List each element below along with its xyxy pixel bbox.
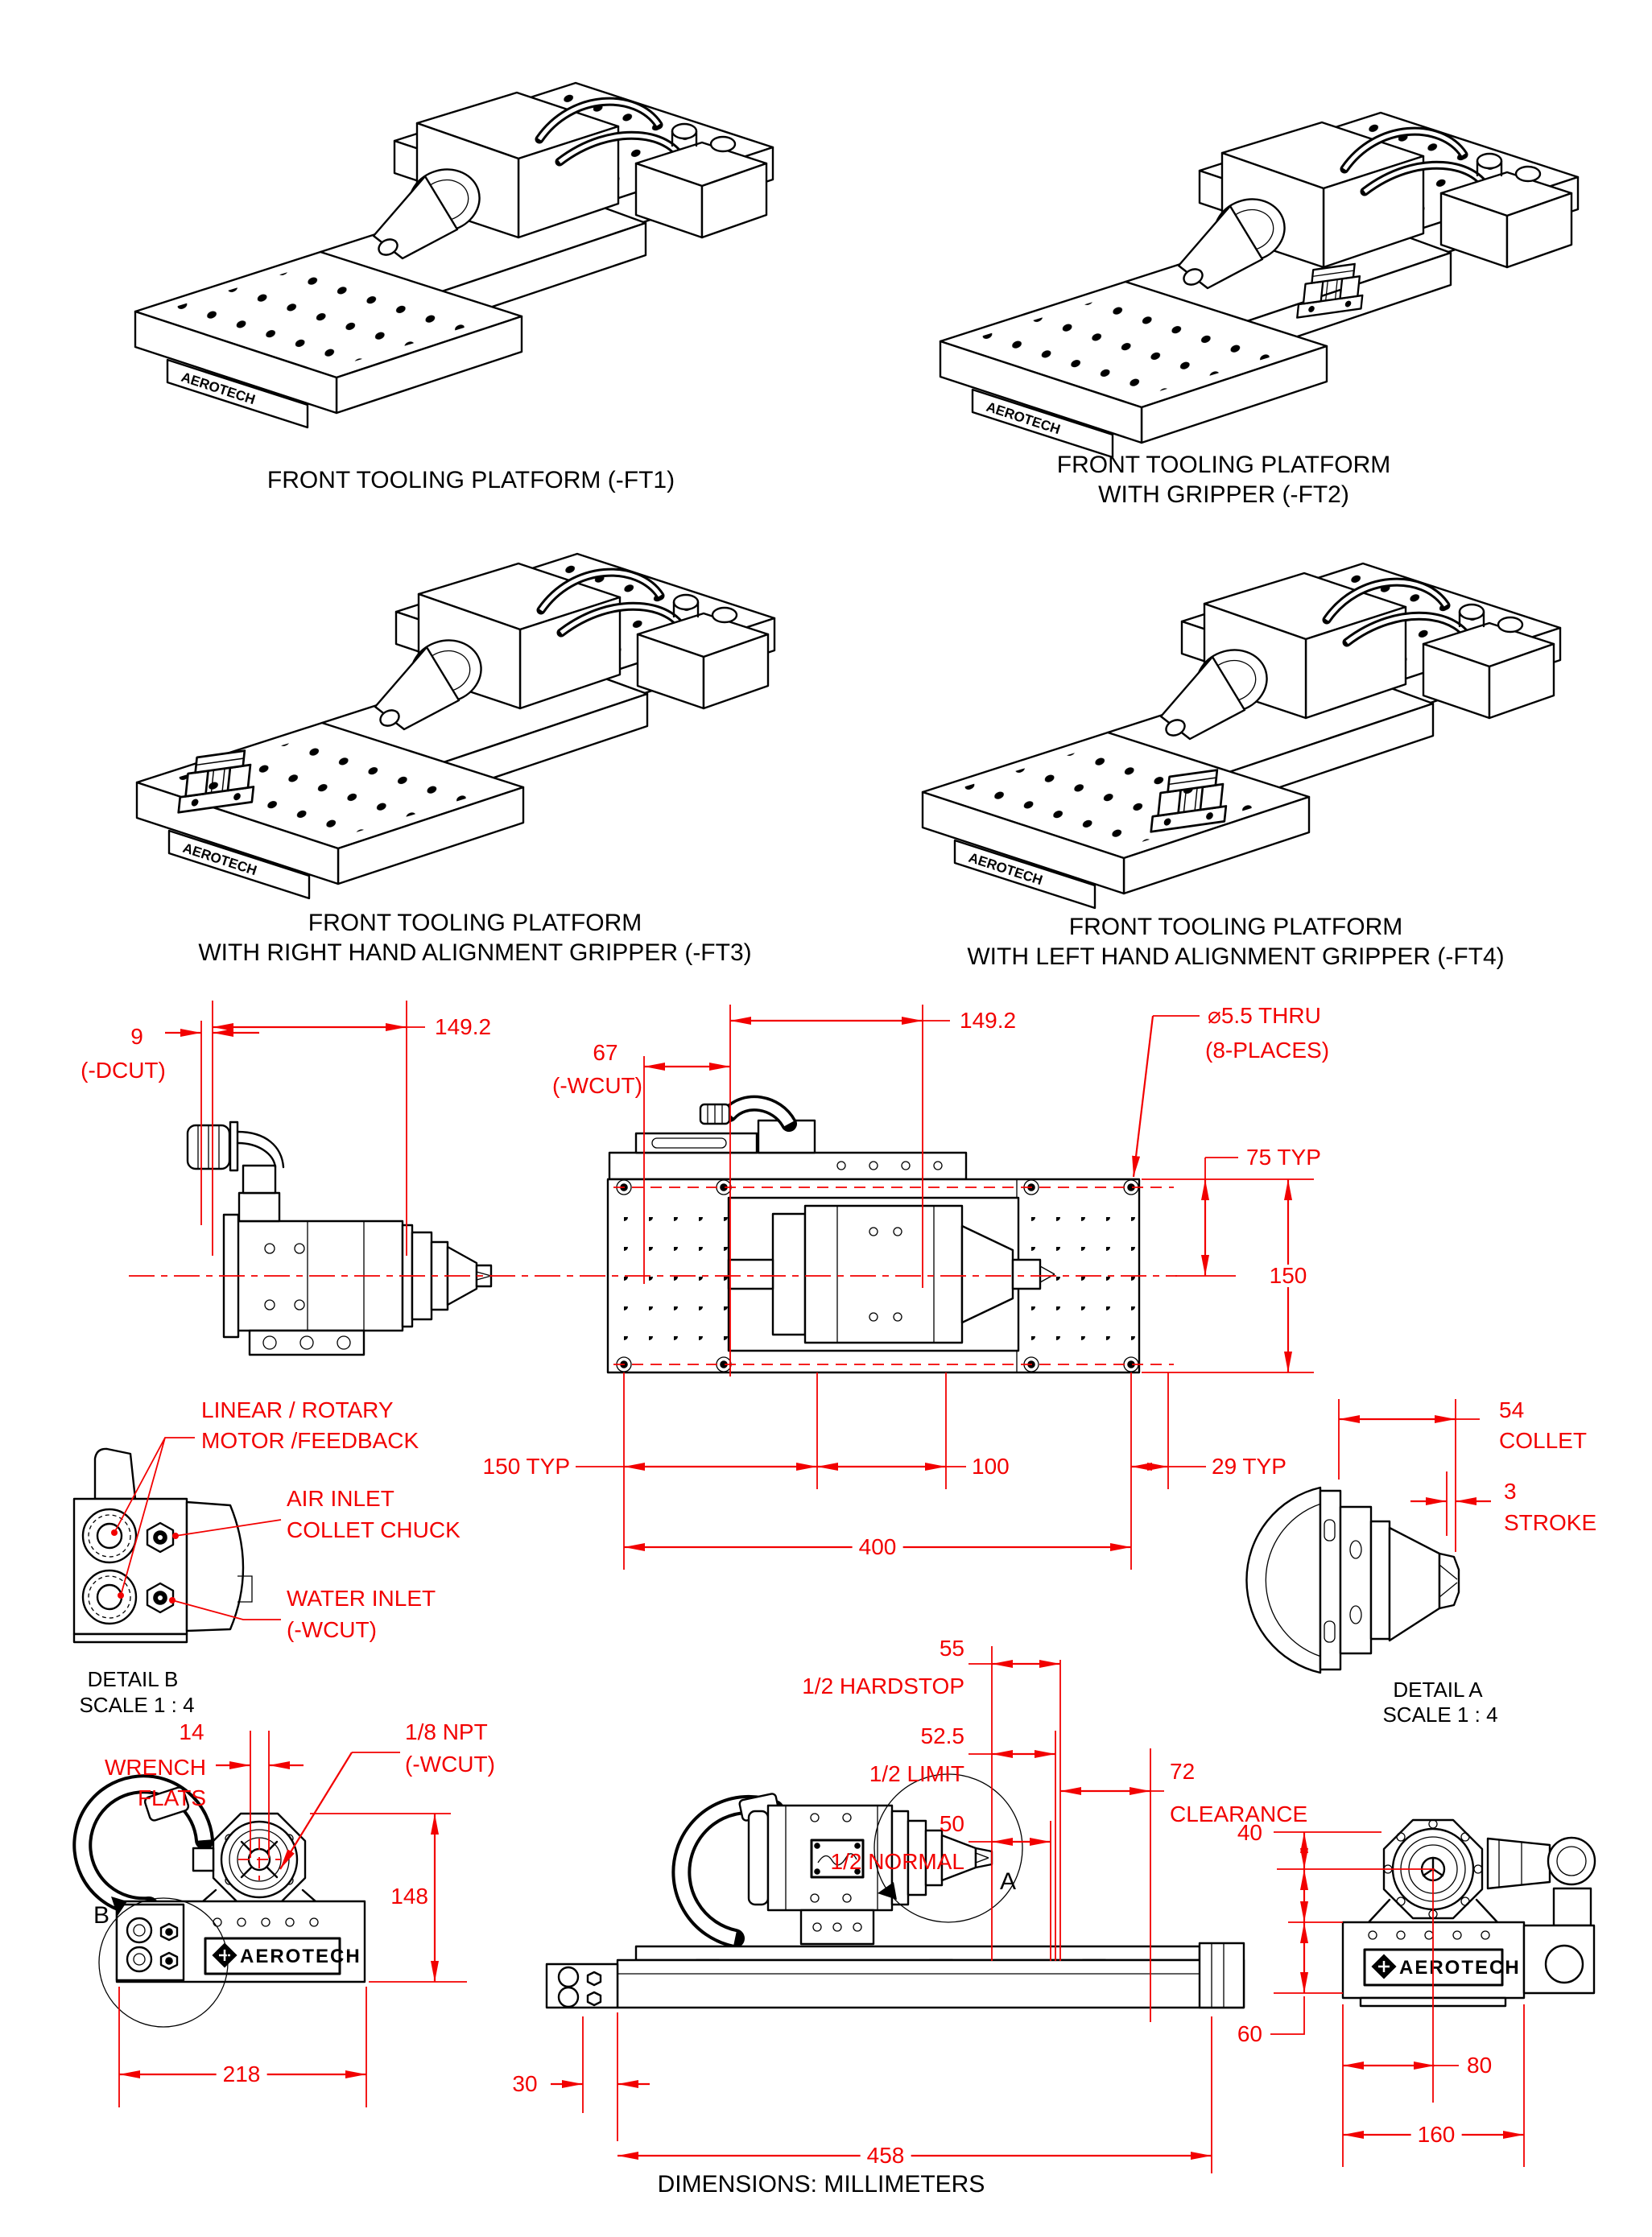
hole-callout-2: (8-PLACES) — [1205, 1039, 1329, 1062]
logo-text-end: AEROTECH — [1399, 1957, 1521, 1979]
caption-ft4-line1: FRONT TOOLING PLATFORM — [1069, 915, 1403, 939]
dim-150: 150 — [1263, 1265, 1314, 1287]
label-air-1: AIR INLET — [287, 1488, 394, 1510]
dim-218: 218 — [217, 2063, 267, 2086]
dim-60: 60 — [1237, 2023, 1262, 2045]
label-50: 1/2 NORMAL — [831, 1851, 965, 1873]
detail-a-view — [1246, 1399, 1491, 1673]
dim-148: 148 — [390, 1885, 428, 1908]
dim-67-note: (-WCUT) — [552, 1075, 642, 1097]
label-wrench: WRENCH — [105, 1756, 206, 1779]
label-55: 1/2 HARDSTOP — [802, 1675, 964, 1698]
caption-ft2-line2: WITH GRIPPER (-FT2) — [1098, 483, 1349, 507]
aerotech-logo-front: AEROTECH — [205, 1938, 361, 1974]
dim-29-typ: 29 TYP — [1212, 1455, 1286, 1478]
plan-view — [608, 1104, 1139, 1372]
caption-ft4-line2: WITH LEFT HAND ALIGNMENT GRIPPER (-FT4) — [967, 945, 1504, 969]
label-motor-1: LINEAR / ROTARY — [201, 1399, 394, 1422]
detail-a-title: DETAIL A — [1393, 1679, 1482, 1700]
side-view — [188, 1122, 491, 1355]
detail-b-title: DETAIL B — [88, 1669, 179, 1690]
dim-80: 80 — [1467, 2054, 1492, 2077]
iso-view-ft2 — [940, 113, 1578, 457]
dim-9: 9 — [130, 1026, 143, 1048]
dim-3-label: STROKE — [1504, 1512, 1596, 1534]
aerotech-logo-end: AEROTECH — [1365, 1950, 1521, 1985]
dim-149-side: 149.2 — [435, 1016, 491, 1038]
dim-75-typ: 75 TYP — [1246, 1146, 1321, 1169]
dimensions-note: DIMENSIONS: MILLIMETERS — [658, 2173, 985, 2197]
label-52-5: 1/2 LIMIT — [869, 1763, 964, 1785]
dim-67: 67 — [593, 1042, 617, 1064]
caption-ft2-line1: FRONT TOOLING PLATFORM — [1057, 453, 1391, 477]
iso-view-ft4 — [923, 563, 1560, 908]
label-water-2: (-WCUT) — [287, 1619, 377, 1641]
dim-30: 30 — [512, 2073, 537, 2095]
dim-458: 458 — [861, 2144, 911, 2167]
end-view: AEROTECH — [1343, 1820, 1595, 2006]
label-water-1: WATER INLET — [287, 1587, 436, 1610]
dim-3: 3 — [1504, 1480, 1517, 1503]
detail-a-scale: SCALE 1 : 4 — [1382, 1704, 1497, 1725]
hole-callout-1: ⌀5.5 THRU — [1208, 1005, 1321, 1027]
drawing-linework: AEROTECH — [0, 0, 1652, 2237]
label-motor-2: MOTOR /FEEDBACK — [201, 1430, 419, 1452]
drawing-sheet: AEROTECH — [0, 0, 1652, 2237]
caption-ft3-line1: FRONT TOOLING PLATFORM — [308, 911, 642, 935]
dim-400: 400 — [853, 1536, 903, 1558]
dim-149-plan: 149.2 — [960, 1009, 1016, 1032]
caption-ft1: FRONT TOOLING PLATFORM (-FT1) — [267, 468, 675, 493]
dim-150-typ: 150 TYP — [483, 1455, 570, 1478]
dim-52-5: 52.5 — [921, 1725, 965, 1748]
dim-14: 14 — [179, 1721, 204, 1744]
label-npt-2: (-WCUT) — [405, 1753, 495, 1776]
detail-b-scale: SCALE 1 : 4 — [79, 1694, 194, 1715]
travel-view — [547, 1774, 1244, 2008]
detail-marker-a: A — [1000, 1870, 1016, 1894]
iso-view-ft1 — [135, 83, 773, 427]
detail-marker-b: B — [93, 1904, 109, 1928]
logo-text-front: AEROTECH — [240, 1946, 361, 1967]
dim-54-label: COLLET — [1499, 1430, 1587, 1452]
iso-view-ft3 — [137, 554, 774, 898]
dim-54: 54 — [1499, 1399, 1524, 1422]
dim-55: 55 — [940, 1637, 964, 1660]
dim-50: 50 — [940, 1813, 964, 1835]
dim-72: 72 — [1170, 1760, 1195, 1783]
dim-9-note: (-DCUT) — [81, 1059, 166, 1082]
front-view: AEROTECH — [82, 1784, 365, 2027]
detail-b-view — [74, 1438, 281, 1642]
dim-160: 160 — [1411, 2123, 1462, 2146]
label-npt-1: 1/8 NPT — [405, 1721, 488, 1744]
dim-100: 100 — [972, 1455, 1010, 1478]
label-air-2: COLLET CHUCK — [287, 1519, 460, 1542]
dim-40: 40 — [1237, 1822, 1262, 1844]
caption-ft3-line2: WITH RIGHT HAND ALIGNMENT GRIPPER (-FT3) — [198, 941, 751, 965]
label-flats: FLATS — [138, 1787, 206, 1810]
